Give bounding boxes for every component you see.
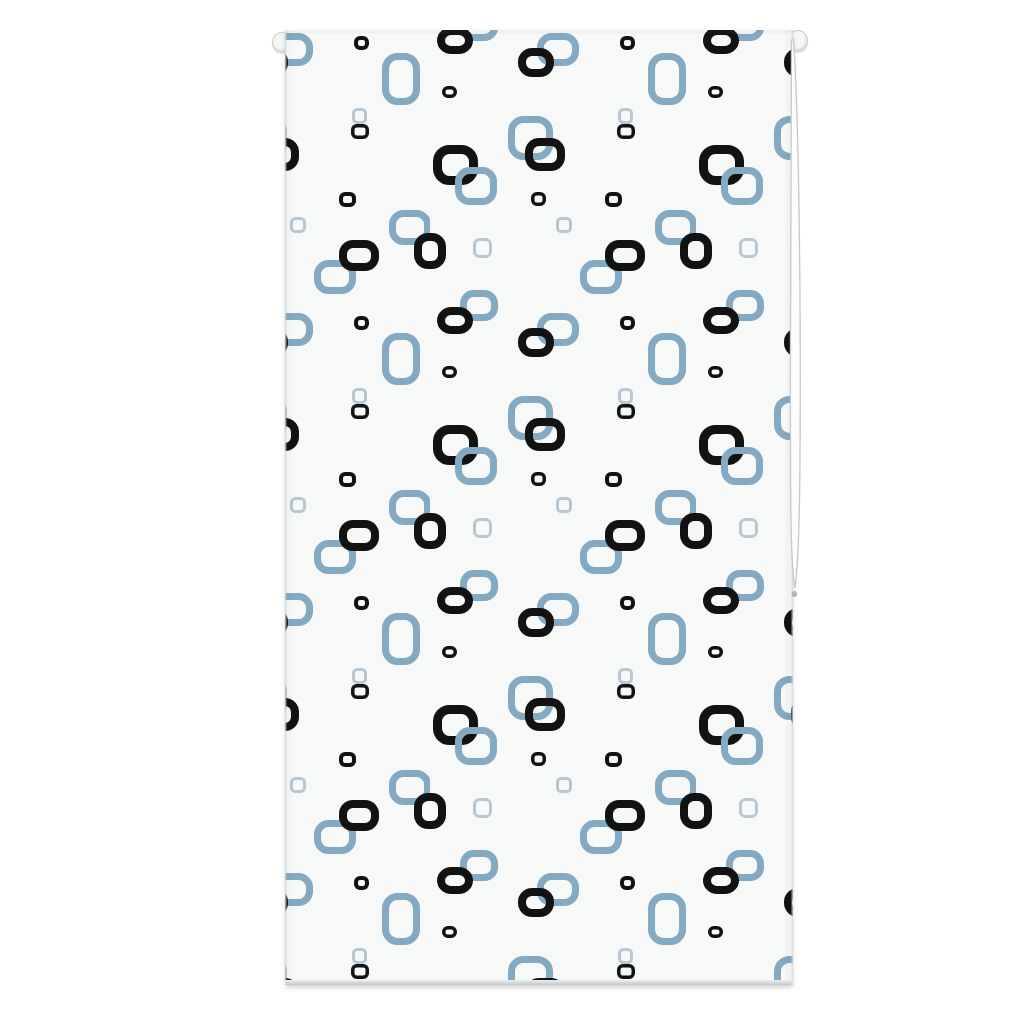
- pull-cord: [780, 30, 810, 635]
- fabric-layer: [285, 30, 793, 980]
- blind-fabric: [285, 30, 793, 985]
- product-photo: [0, 0, 1024, 1024]
- fabric-layer: [285, 30, 292, 985]
- cord-bead: [792, 591, 797, 597]
- pull-cord-loop: [790, 40, 800, 588]
- fabric-layer: [285, 30, 793, 34]
- bottom-hem-bar: [285, 980, 793, 985]
- roller-blind: [285, 30, 793, 985]
